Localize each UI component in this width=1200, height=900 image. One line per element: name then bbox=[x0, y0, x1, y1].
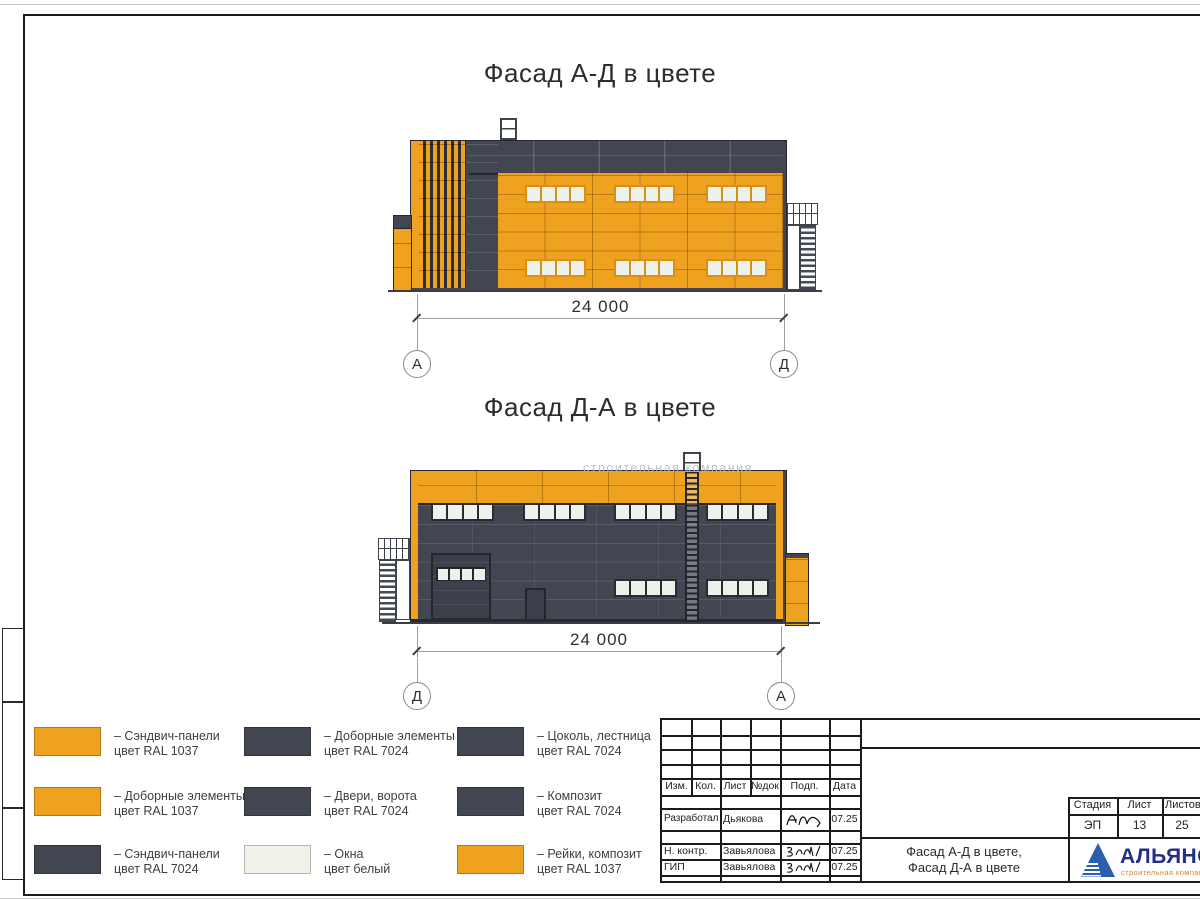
legend-sublabel: цвет RAL 1037 bbox=[114, 804, 245, 819]
window-band bbox=[614, 503, 677, 521]
legend-swatch bbox=[34, 845, 101, 874]
legend-label: – Композит bbox=[537, 789, 622, 804]
legend-swatch bbox=[244, 787, 311, 816]
legend-sublabel: цвет RAL 7024 bbox=[324, 744, 455, 759]
legend-sublabel: цвет RAL 7024 bbox=[114, 862, 220, 877]
tb-name: Завьялова bbox=[723, 843, 779, 859]
legend-item: – Окнацвет белый bbox=[244, 845, 390, 877]
frame-side-cell bbox=[2, 702, 24, 808]
legend-swatch bbox=[244, 727, 311, 756]
orange-rails bbox=[419, 141, 466, 288]
facade-da-building bbox=[410, 470, 787, 624]
window-band bbox=[525, 259, 586, 277]
left-annex bbox=[393, 215, 412, 292]
orange-top-band bbox=[411, 471, 783, 505]
legend-label: – Доборные элементы bbox=[324, 729, 455, 744]
annex-roof-trim bbox=[394, 216, 411, 229]
roof-vent bbox=[500, 118, 517, 140]
tb-sheet-value: 13 bbox=[1117, 814, 1162, 837]
legend-swatch bbox=[34, 787, 101, 816]
axis-stem bbox=[781, 659, 782, 682]
stair-railing bbox=[378, 538, 410, 560]
orange-corner-trim bbox=[776, 471, 783, 620]
signature bbox=[784, 860, 826, 874]
tb-date: 07.25 bbox=[829, 808, 860, 830]
facade-ad-title: Фасад А-Д в цвете bbox=[300, 58, 900, 89]
tb-name: Дьякова bbox=[723, 808, 779, 830]
extension-line bbox=[417, 294, 418, 326]
company-watermark: строительная компания bbox=[583, 461, 833, 475]
window-band bbox=[525, 185, 586, 203]
pyramid-logo-icon bbox=[1078, 841, 1118, 879]
title-block: Изм. Кол. Лист №док Подп. Дата Разработа… bbox=[660, 718, 1200, 883]
frame-side-cell bbox=[2, 628, 24, 702]
legend-item: – Рейки, композитцвет RAL 1037 bbox=[457, 845, 642, 877]
tb-role: Н. контр. bbox=[664, 843, 720, 859]
legend-label: – Доборные элементы bbox=[114, 789, 245, 804]
company-logo: АЛЬЯНС строительная компания bbox=[1068, 837, 1200, 883]
tb-stage-value: ЭП bbox=[1068, 814, 1117, 837]
legend-sublabel: цвет RAL 7024 bbox=[537, 804, 622, 819]
facade-da-drawing: строительная компания bbox=[378, 452, 822, 632]
orange-corner-trim bbox=[411, 141, 419, 288]
window-band bbox=[706, 579, 769, 597]
right-annex bbox=[785, 553, 809, 626]
tb-date: 07.25 bbox=[829, 859, 860, 875]
tb-header-podp: Подп. bbox=[780, 778, 829, 795]
tb-header-date: Дата bbox=[829, 778, 860, 795]
doc-title-line2: Фасад Д-А в цвете bbox=[908, 860, 1020, 876]
axis-bubble-d: Д bbox=[770, 350, 798, 378]
tb-header-izm: Изм. bbox=[662, 778, 691, 795]
extension-line bbox=[784, 294, 785, 326]
axis-bubble-a: А bbox=[767, 682, 795, 710]
window-band bbox=[706, 259, 767, 277]
legend-label: – Двери, ворота bbox=[324, 789, 417, 804]
axis-stem bbox=[784, 326, 785, 350]
paper-edge-top bbox=[0, 4, 1200, 5]
entrance-door bbox=[525, 588, 546, 621]
legend-swatch bbox=[457, 787, 524, 816]
legend-item: – Доборные элементыцвет RAL 1037 bbox=[34, 787, 245, 819]
legend-item: – Сэндвич-панелицвет RAL 7024 bbox=[34, 845, 220, 877]
axis-stem bbox=[417, 659, 418, 682]
legend-sublabel: цвет белый bbox=[324, 862, 390, 877]
legend-label: – Окна bbox=[324, 847, 390, 862]
dimension-line bbox=[417, 651, 781, 652]
signature bbox=[784, 844, 826, 858]
legend-swatch bbox=[457, 845, 524, 874]
doc-title-line1: Фасад А-Д в цвете, bbox=[906, 844, 1022, 860]
legend-item: – Цоколь, лестницацвет RAL 7024 bbox=[457, 727, 651, 759]
tb-sheets-label: Листов bbox=[1165, 797, 1200, 814]
frame-side-cell bbox=[2, 808, 24, 880]
legend-sublabel: цвет RAL 7024 bbox=[324, 804, 417, 819]
window-band bbox=[614, 579, 677, 597]
legend-swatch bbox=[244, 845, 311, 874]
axis-bubble-d: Д bbox=[403, 682, 431, 710]
roof-access-ladder bbox=[685, 472, 699, 622]
legend-sublabel: цвет RAL 1037 bbox=[537, 862, 642, 877]
stair-door bbox=[787, 225, 800, 290]
facade-ad-building bbox=[410, 140, 787, 292]
window-band bbox=[431, 503, 494, 521]
sectional-gate bbox=[431, 553, 491, 620]
legend-label: – Цоколь, лестница bbox=[537, 729, 651, 744]
company-name: АЛЬЯНС bbox=[1120, 845, 1200, 869]
legend-label: – Сэндвич-панели bbox=[114, 847, 220, 862]
legend-label: – Сэндвич-панели bbox=[114, 729, 220, 744]
stair-door bbox=[396, 560, 410, 620]
tb-header-ndok: №док bbox=[750, 778, 780, 795]
legend-swatch bbox=[34, 727, 101, 756]
company-tagline: строительная компания bbox=[1121, 868, 1200, 877]
tb-stage-label: Стадия bbox=[1068, 797, 1117, 814]
tb-sheet-label: Лист bbox=[1117, 797, 1162, 814]
legend-item: – Доборные элементыцвет RAL 7024 bbox=[244, 727, 455, 759]
signature bbox=[784, 811, 826, 829]
paper-edge-bottom bbox=[0, 898, 1200, 899]
annex-roof-trim bbox=[786, 554, 808, 558]
window-band bbox=[523, 503, 586, 521]
legend-item: – Двери, воротацвет RAL 7024 bbox=[244, 787, 417, 819]
tb-header-list: Лист bbox=[720, 778, 750, 795]
gate-window-strip bbox=[436, 567, 486, 581]
axis-bubble-a: А bbox=[403, 350, 431, 378]
dimension-label: 24 000 bbox=[420, 297, 781, 317]
legend-label: – Рейки, композит bbox=[537, 847, 642, 862]
exterior-stair bbox=[379, 560, 396, 622]
dark-top-band bbox=[469, 141, 783, 175]
tb-role: Разработал bbox=[664, 808, 720, 830]
legend-sublabel: цвет RAL 1037 bbox=[114, 744, 220, 759]
exterior-stair bbox=[800, 225, 816, 290]
legend-sublabel: цвет RAL 7024 bbox=[537, 744, 651, 759]
orange-corner-trim bbox=[411, 471, 418, 620]
tb-doc-title: Фасад А-Д в цвете, Фасад Д-А в цвете bbox=[860, 837, 1068, 883]
tb-role: ГИП bbox=[664, 859, 720, 875]
extension-line bbox=[781, 626, 782, 658]
dimension-label: 24 000 bbox=[420, 630, 778, 650]
tb-date: 07.25 bbox=[829, 843, 860, 859]
tb-sheets-value: 25 bbox=[1162, 814, 1200, 837]
tb-name: Завьялова bbox=[723, 859, 779, 875]
window-band bbox=[614, 185, 675, 203]
stair-railing bbox=[787, 203, 818, 225]
ground-line bbox=[382, 622, 820, 624]
legend-item: – Композитцвет RAL 7024 bbox=[457, 787, 622, 819]
extension-line bbox=[417, 626, 418, 658]
axis-stem bbox=[417, 326, 418, 350]
window-band bbox=[706, 185, 767, 203]
legend-swatch bbox=[457, 727, 524, 756]
legend-item: – Сэндвич-панелицвет RAL 1037 bbox=[34, 727, 220, 759]
window-band bbox=[614, 259, 675, 277]
ground-line bbox=[388, 290, 822, 292]
facade-ad-drawing bbox=[393, 118, 827, 296]
dimension-line bbox=[417, 318, 784, 319]
facade-da-title: Фасад Д-А в цвете bbox=[300, 392, 900, 423]
window-band bbox=[706, 503, 769, 521]
tb-header-kol: Кол. bbox=[691, 778, 720, 795]
